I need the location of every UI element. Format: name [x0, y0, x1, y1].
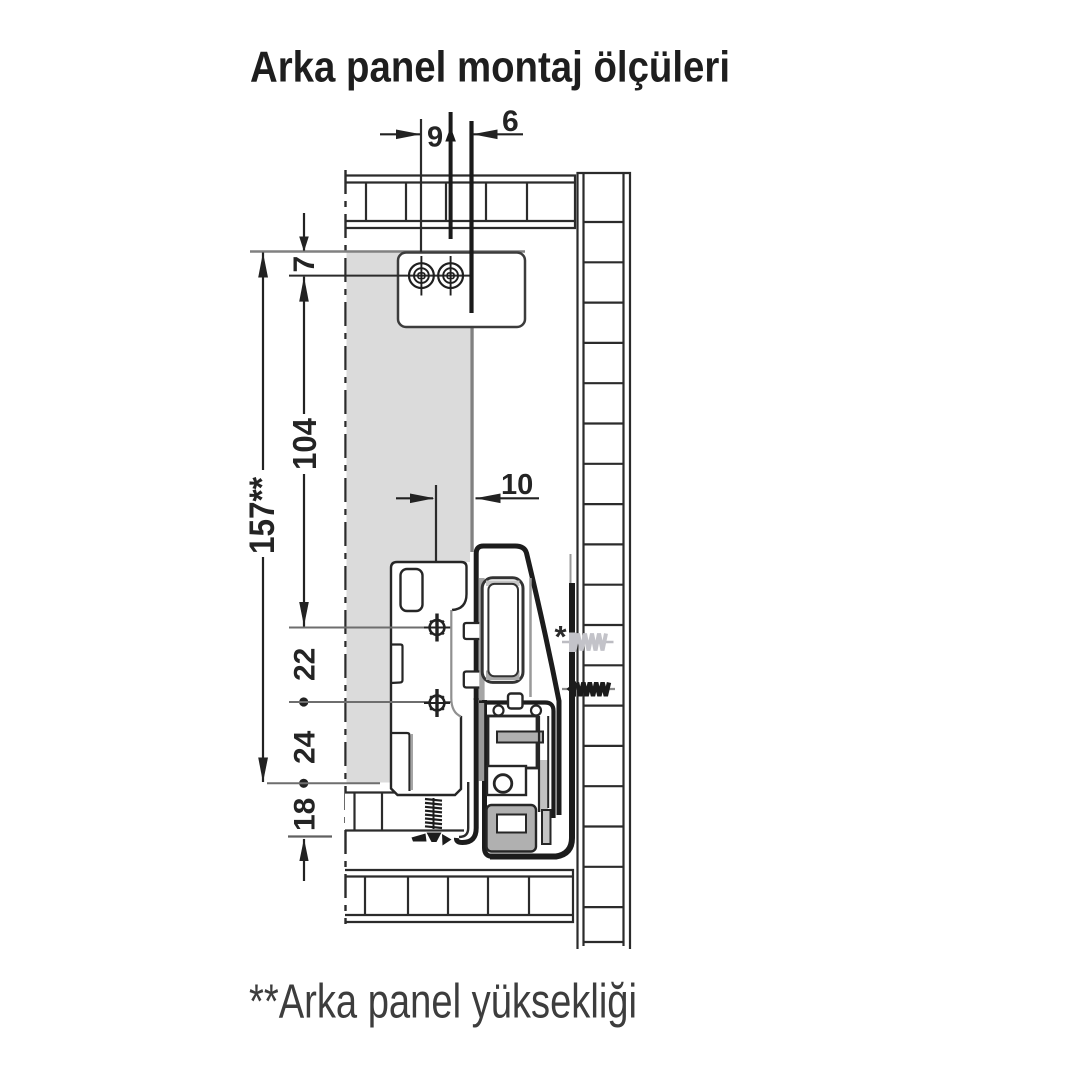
svg-text:6: 6	[502, 105, 519, 138]
svg-text:157**: 157**	[243, 477, 282, 554]
svg-text:**Arka panel yüksekliği: **Arka panel yüksekliği	[249, 976, 637, 1029]
svg-text:104: 104	[286, 417, 323, 470]
svg-text:9: 9	[427, 122, 443, 154]
svg-text:7: 7	[288, 256, 321, 273]
svg-text:24: 24	[289, 730, 322, 764]
svg-text:Arka panel montaj ölçüleri: Arka panel montaj ölçüleri	[250, 43, 730, 92]
svg-text:18: 18	[289, 798, 322, 831]
svg-text:22: 22	[289, 648, 322, 681]
svg-text:10: 10	[501, 469, 533, 501]
svg-text:*: *	[555, 619, 568, 654]
